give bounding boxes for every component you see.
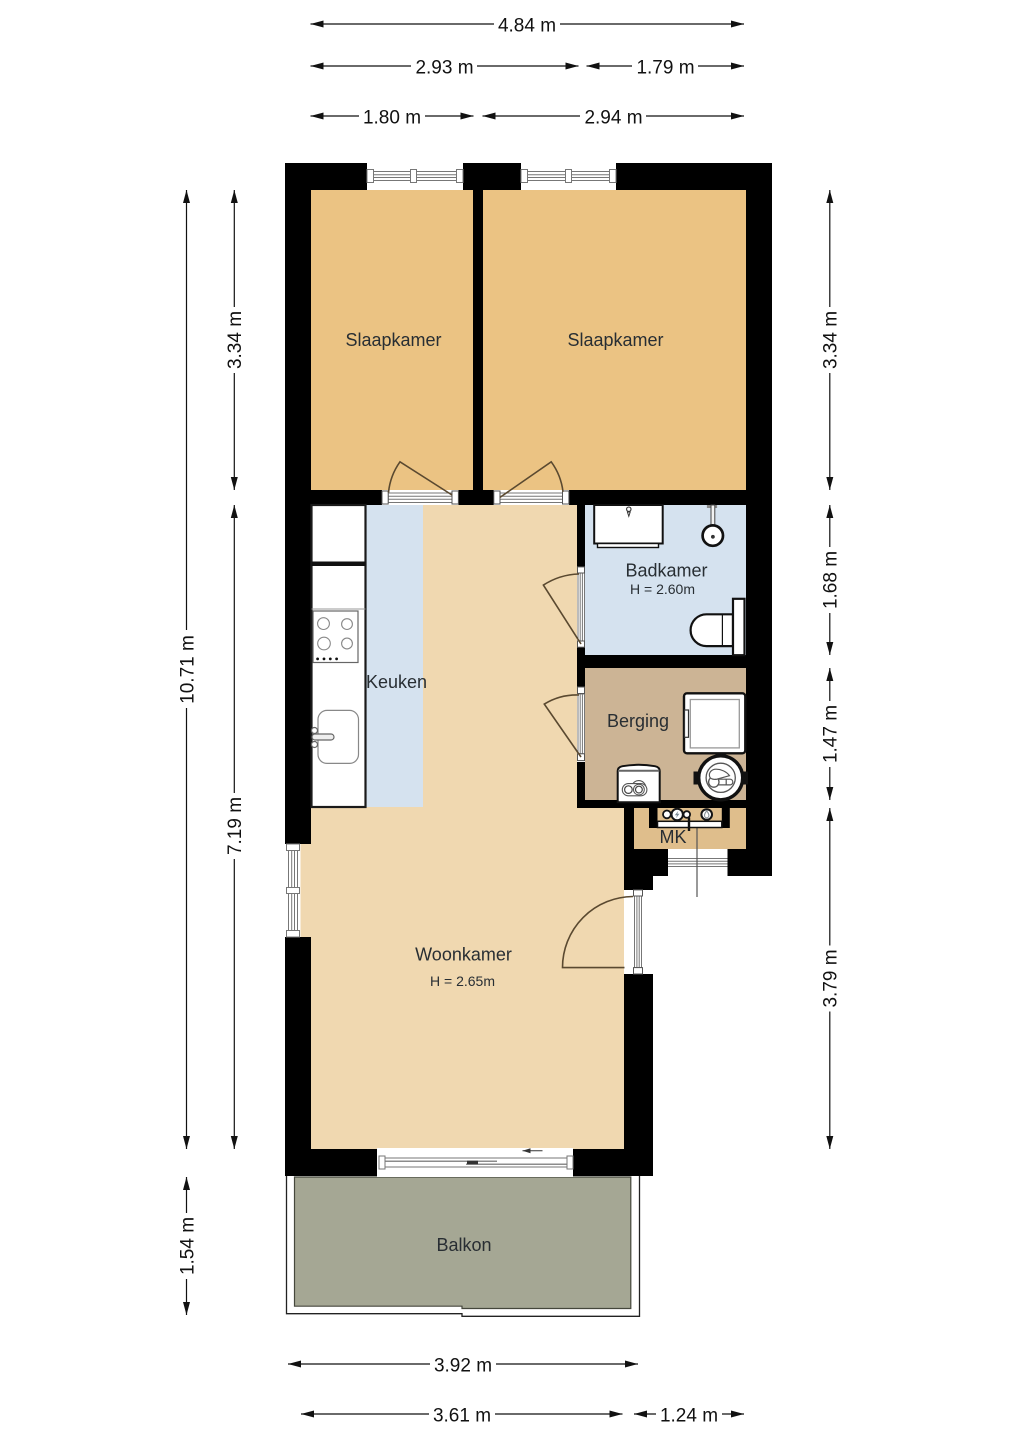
svg-text:4.84 m: 4.84 m: [498, 15, 556, 36]
svg-text:H = 2.60m: H = 2.60m: [630, 581, 695, 597]
svg-text:7.19 m: 7.19 m: [225, 797, 246, 855]
svg-text:3.79 m: 3.79 m: [821, 949, 842, 1007]
svg-text:Slaapkamer: Slaapkamer: [567, 330, 663, 350]
svg-text:3.34 m: 3.34 m: [225, 311, 246, 369]
svg-text:1.47 m: 1.47 m: [821, 705, 842, 763]
svg-text:Woonkamer: Woonkamer: [415, 945, 512, 965]
svg-text:2.94 m: 2.94 m: [584, 107, 642, 128]
svg-text:10.71 m: 10.71 m: [177, 635, 198, 704]
svg-text:H = 2.65m: H = 2.65m: [430, 973, 495, 989]
svg-text:1.79 m: 1.79 m: [636, 57, 694, 78]
svg-text:Berging: Berging: [607, 711, 669, 731]
svg-text:1.80 m: 1.80 m: [363, 107, 421, 128]
svg-text:Slaapkamer: Slaapkamer: [345, 330, 441, 350]
svg-text:3.34 m: 3.34 m: [821, 311, 842, 369]
svg-text:Keuken: Keuken: [366, 672, 427, 692]
svg-text:1.54 m: 1.54 m: [177, 1217, 198, 1275]
svg-text:MK: MK: [660, 827, 687, 847]
svg-text:Balkon: Balkon: [436, 1235, 491, 1255]
svg-text:Badkamer: Badkamer: [625, 561, 707, 581]
svg-text:1.24 m: 1.24 m: [660, 1405, 718, 1426]
svg-text:3.61 m: 3.61 m: [433, 1405, 491, 1426]
svg-text:2.93 m: 2.93 m: [415, 57, 473, 78]
svg-text:1.68 m: 1.68 m: [821, 551, 842, 609]
svg-text:3.92 m: 3.92 m: [434, 1355, 492, 1376]
